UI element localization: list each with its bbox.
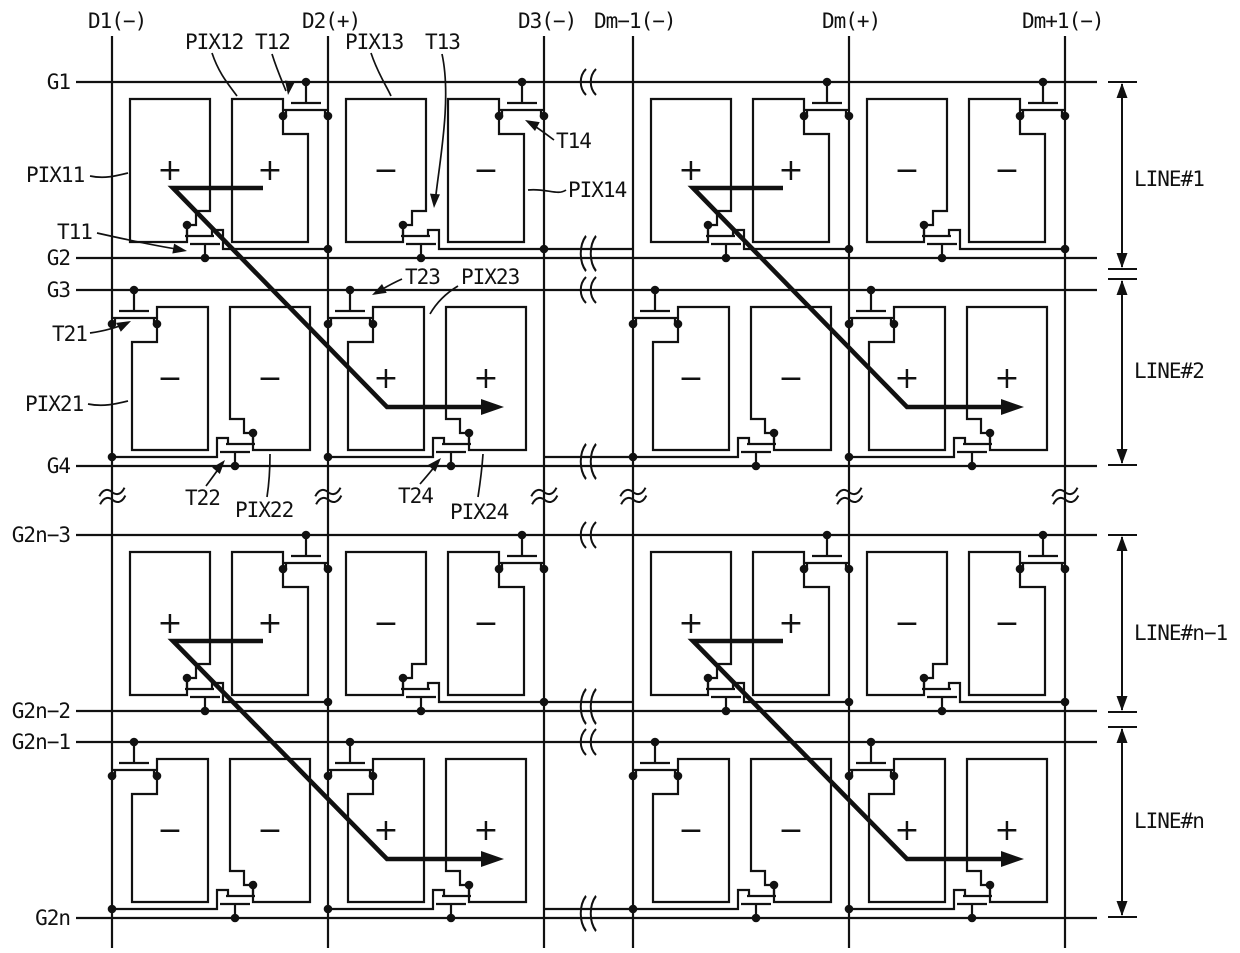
leader-t13 bbox=[435, 54, 446, 203]
polarity-sign: − bbox=[473, 606, 498, 641]
polarity-sign: − bbox=[678, 813, 703, 848]
leader-pix21 bbox=[88, 401, 128, 405]
gate-line-label-g1: G1 bbox=[47, 70, 71, 94]
line-n-1-span bbox=[1108, 535, 1137, 712]
label-t11: T11 bbox=[57, 220, 92, 244]
line-span-label-2: LINE#2 bbox=[1134, 359, 1204, 383]
leader-pix22 bbox=[267, 454, 270, 497]
polarity-sign: + bbox=[157, 606, 182, 641]
polarity-sign: − bbox=[994, 153, 1019, 188]
leader-pix12 bbox=[212, 53, 237, 96]
label-pix14: PIX14 bbox=[568, 178, 627, 202]
label-t21: T21 bbox=[52, 322, 87, 346]
leader-pix24 bbox=[478, 454, 483, 497]
label-pix23: PIX23 bbox=[461, 265, 520, 289]
polarity-sign: − bbox=[678, 361, 703, 396]
polarity-sign: − bbox=[157, 361, 182, 396]
data-line-label-d3: D3(−) bbox=[518, 9, 576, 33]
polarity-sign: + bbox=[994, 813, 1019, 848]
data-line-label-dm: Dm(+) bbox=[822, 9, 880, 33]
leader-arrowhead bbox=[172, 244, 188, 256]
label-pix11: PIX11 bbox=[26, 163, 85, 187]
polarity-sign: + bbox=[894, 813, 919, 848]
gate-line-label-g4: G4 bbox=[47, 454, 71, 478]
gate-line-label-g2n-1: G2n−1 bbox=[12, 730, 71, 754]
leader-arrowhead bbox=[370, 284, 387, 299]
polarity-sign: − bbox=[257, 813, 282, 848]
scan-arrowhead bbox=[481, 851, 504, 867]
gap-rails bbox=[544, 249, 633, 909]
polarity-sign: + bbox=[373, 813, 398, 848]
pixel-array-schematic: D1(−) D2(+) D3(−) Dm−1(−) Dm(+) Dm+1(−) … bbox=[0, 0, 1240, 953]
polarity-sign: + bbox=[894, 361, 919, 396]
label-t13: T13 bbox=[425, 30, 460, 54]
label-pix21: PIX21 bbox=[25, 392, 84, 416]
polarity-sign: − bbox=[778, 813, 803, 848]
leader-pix13 bbox=[371, 53, 391, 96]
data-line-label-dm-1: Dm−1(−) bbox=[594, 9, 676, 33]
polarity-sign: − bbox=[894, 606, 919, 641]
gate-line-label-g2n-2: G2n−2 bbox=[12, 699, 70, 723]
polarity-sign: + bbox=[473, 813, 498, 848]
polarity-sign: + bbox=[778, 606, 803, 641]
line1-span bbox=[1108, 82, 1137, 269]
polarity-sign: + bbox=[373, 361, 398, 396]
scan-arrowhead bbox=[481, 399, 504, 415]
leader-arrowhead bbox=[429, 194, 440, 209]
polarity-sign: + bbox=[157, 153, 182, 188]
label-t24: T24 bbox=[398, 484, 433, 508]
gate-line-label-g2: G2 bbox=[47, 246, 70, 270]
scan-arrowhead bbox=[1001, 851, 1024, 867]
leader-t12 bbox=[272, 54, 286, 91]
leader-pix14 bbox=[528, 190, 566, 193]
polarity-sign: + bbox=[778, 153, 803, 188]
label-t14: T14 bbox=[556, 129, 591, 153]
polarity-sign: − bbox=[778, 361, 803, 396]
label-pix22: PIX22 bbox=[235, 498, 293, 522]
gate-line-label-g2n: G2n bbox=[35, 906, 70, 930]
gate-line-label-g2n-3: G2n−3 bbox=[12, 523, 71, 547]
scan-arrowhead bbox=[1001, 399, 1024, 415]
polarity-sign: − bbox=[473, 153, 498, 188]
label-t23: T23 bbox=[405, 265, 440, 289]
polarity-sign: − bbox=[373, 606, 398, 641]
line-span-label-n: LINE#n bbox=[1134, 809, 1204, 833]
label-t12: T12 bbox=[255, 30, 290, 54]
polarity-sign: − bbox=[894, 153, 919, 188]
label-t22: T22 bbox=[185, 486, 220, 510]
polarity-sign: + bbox=[257, 606, 282, 641]
data-line-label-d1: D1(−) bbox=[88, 9, 146, 33]
data-line-label-dm+1: Dm+1(−) bbox=[1022, 9, 1104, 33]
polarity-sign: − bbox=[994, 606, 1019, 641]
polarity-sign: + bbox=[473, 361, 498, 396]
polarity-sign: + bbox=[994, 361, 1019, 396]
polarity-sign: + bbox=[257, 153, 282, 188]
line-n-span bbox=[1108, 727, 1137, 917]
line-span-label-1: LINE#1 bbox=[1134, 167, 1204, 191]
polarity-sign: − bbox=[157, 813, 182, 848]
leader-pix11 bbox=[90, 173, 128, 177]
label-pix13: PIX13 bbox=[345, 30, 404, 54]
line-span-label-n-1: LINE#n−1 bbox=[1134, 621, 1228, 645]
line-span-dimensions bbox=[1108, 82, 1137, 917]
label-pix24: PIX24 bbox=[450, 500, 509, 524]
polarity-sign: − bbox=[257, 361, 282, 396]
label-pix12: PIX12 bbox=[185, 30, 243, 54]
polarity-sign: + bbox=[678, 153, 703, 188]
pixel-array-figure: D1(−) D2(+) D3(−) Dm−1(−) Dm(+) Dm+1(−) … bbox=[0, 0, 1240, 953]
gate-line-label-g3: G3 bbox=[47, 278, 71, 302]
line2-span bbox=[1108, 279, 1137, 465]
polarity-sign: + bbox=[678, 606, 703, 641]
data-lines bbox=[112, 36, 1065, 948]
polarity-sign: − bbox=[373, 153, 398, 188]
